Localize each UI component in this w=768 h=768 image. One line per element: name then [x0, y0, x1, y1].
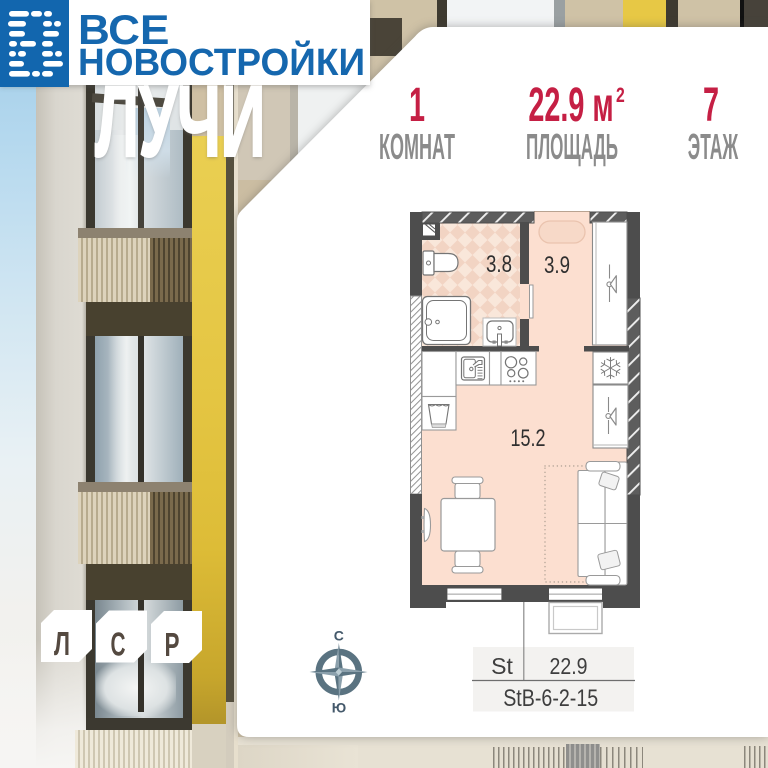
svg-text:С: С [111, 626, 126, 663]
svg-text:Л: Л [54, 625, 70, 662]
svg-text:Р: Р [165, 626, 180, 663]
